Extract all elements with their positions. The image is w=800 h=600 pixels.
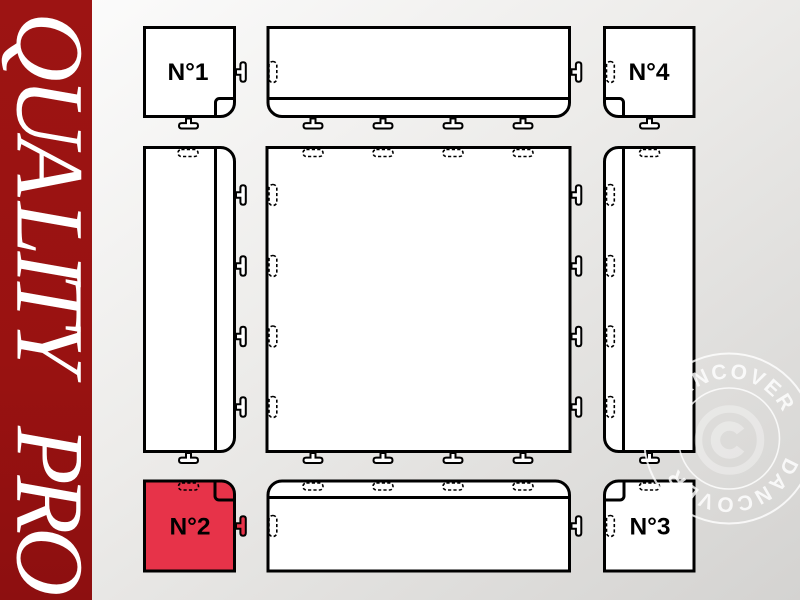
svg-text:N°3: N°3 (629, 514, 670, 541)
svg-text:N°4: N°4 (628, 59, 669, 86)
svg-text:N°2: N°2 (169, 514, 210, 541)
svg-text:N°1: N°1 (167, 59, 208, 86)
svg-text:PRO: PRO (0, 425, 104, 596)
